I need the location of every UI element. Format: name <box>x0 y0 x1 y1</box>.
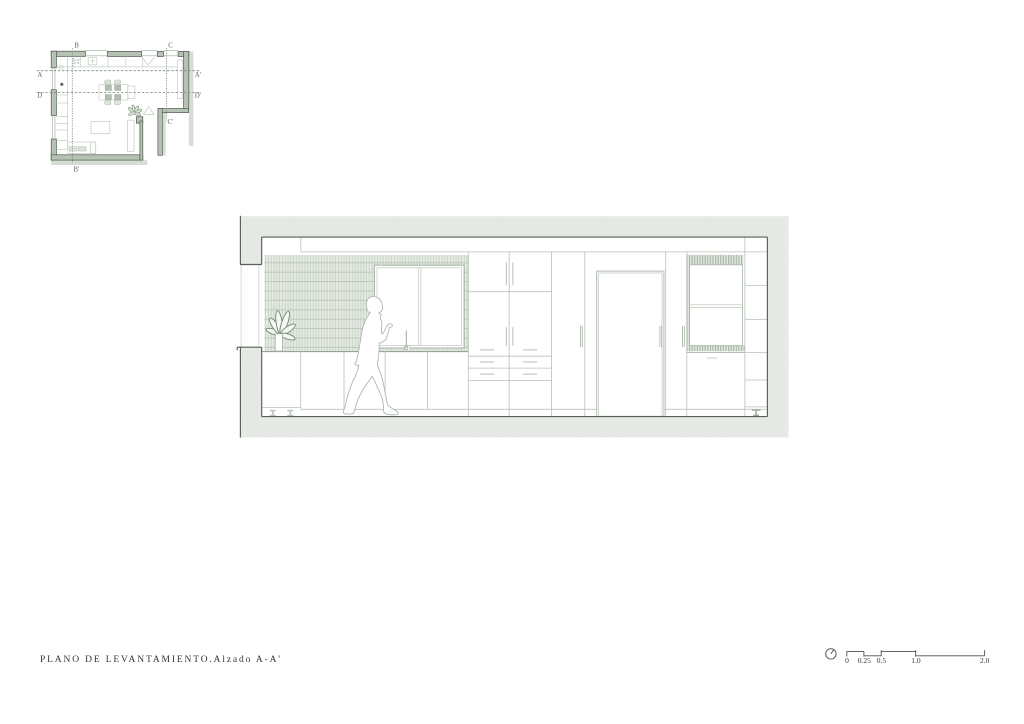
svg-text:B': B' <box>73 165 79 173</box>
svg-text:D': D' <box>195 92 201 100</box>
svg-text:C: C <box>168 42 173 50</box>
svg-text:C': C' <box>168 118 174 126</box>
svg-text:0.5: 0.5 <box>877 656 887 665</box>
svg-text:0: 0 <box>845 656 849 665</box>
svg-text:A': A' <box>195 71 201 79</box>
svg-text:0.25: 0.25 <box>858 656 871 665</box>
svg-text:PLANO DE LEVANTAMIENTO.Alzado: PLANO DE LEVANTAMIENTO.Alzado A-A' <box>40 655 282 665</box>
svg-text:2.0: 2.0 <box>980 656 990 665</box>
svg-text:1.0: 1.0 <box>911 656 921 665</box>
svg-text:D: D <box>37 91 42 99</box>
svg-text:B: B <box>74 42 79 50</box>
svg-text:A: A <box>37 71 42 79</box>
